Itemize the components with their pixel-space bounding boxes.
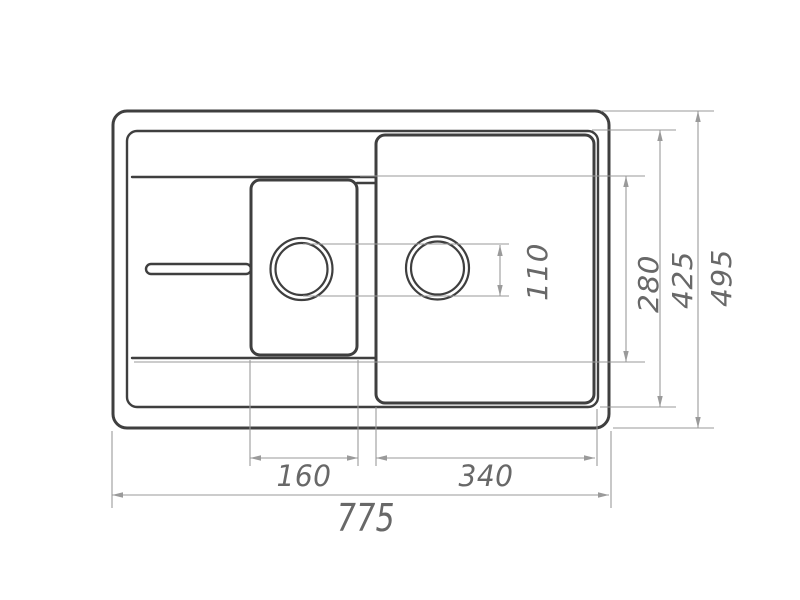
dimension-label-rim-depth: 425 (666, 251, 699, 309)
arrow-overall-depth-bottom (695, 417, 700, 428)
dimension-arrowheads (112, 111, 701, 498)
dimension-label-bowl-depth: 280 (632, 255, 665, 313)
main-bowl-drain-outer-ring (406, 237, 469, 300)
arrow-drain-bottom (497, 285, 502, 296)
dimension-label-right-bowl-width: 340 (459, 459, 514, 493)
main-bowl (376, 135, 594, 403)
drainboard-groove (146, 264, 251, 274)
arrow-right-bowl-right (584, 455, 595, 460)
dimension-label-overall-width: 775 (337, 496, 395, 540)
arrow-left-bowl-left (250, 455, 261, 460)
main-bowl-drain-hole (411, 242, 464, 295)
arrow-bowl-depth-bottom (623, 351, 628, 362)
drawing-svg: 160 340 775 110 280 425 495 (0, 0, 800, 600)
sink-technical-drawing: 160 340 775 110 280 425 495 (0, 0, 800, 600)
small-bowl (251, 180, 357, 355)
small-bowl-drain-hole (276, 243, 328, 295)
arrow-left-bowl-right (347, 455, 358, 460)
arrow-overall-width-right (598, 492, 609, 497)
extension-lines (112, 111, 714, 508)
dimension-label-drain-diameter: 110 (521, 243, 554, 301)
dimension-label-overall-depth: 495 (705, 249, 738, 307)
arrow-rim-depth-top (657, 130, 662, 141)
dimension-label-left-bowl-width: 160 (277, 459, 332, 493)
arrow-right-bowl-left (376, 455, 387, 460)
arrow-overall-depth-top (695, 111, 700, 122)
small-bowl-drain-outer-ring (271, 238, 333, 300)
arrow-bowl-depth-top (623, 176, 628, 187)
arrow-overall-width-left (112, 492, 123, 497)
arrow-drain-top (497, 245, 502, 256)
arrow-rim-depth-bottom (657, 396, 662, 407)
